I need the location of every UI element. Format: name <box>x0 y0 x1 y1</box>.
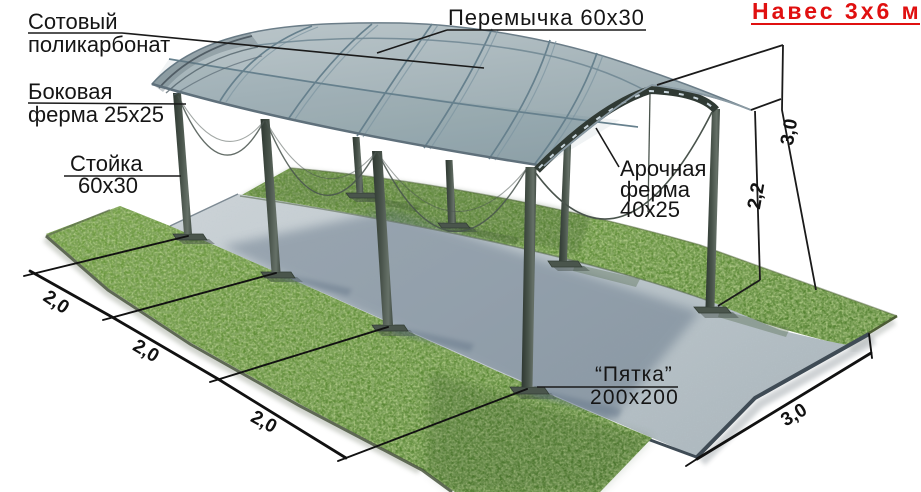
svg-text:Навес 3х6 м: Навес 3х6 м <box>752 0 921 24</box>
svg-text:поликарбонат: поликарбонат <box>28 32 170 57</box>
svg-text:ферма 25х25: ферма 25х25 <box>28 102 164 127</box>
svg-text:60х30: 60х30 <box>78 173 138 198</box>
svg-text:“Пятка”: “Пятка” <box>595 363 673 386</box>
svg-text:Сотовый: Сотовый <box>28 9 118 34</box>
svg-text:40х25: 40х25 <box>620 197 680 222</box>
svg-text:200х200: 200х200 <box>590 386 679 409</box>
svg-text:Боковая: Боковая <box>28 79 112 104</box>
svg-text:Перемычка 60х30: Перемычка 60х30 <box>448 5 645 30</box>
